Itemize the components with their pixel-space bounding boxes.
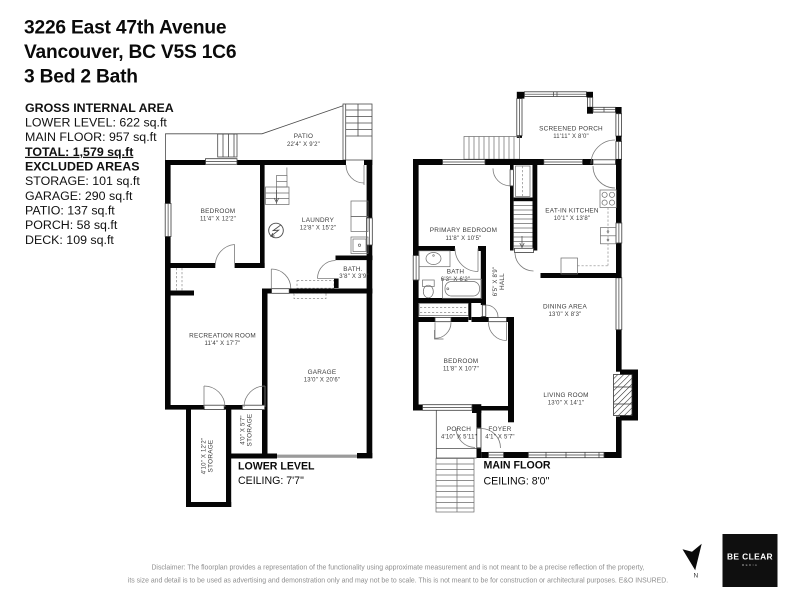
svg-text:PORCH: 58 sq.ft: PORCH: 58 sq.ft [25,218,118,232]
svg-text:CEILING: 8'0": CEILING: 8'0" [484,476,550,488]
svg-text:4'0" X 5'7": 4'0" X 5'7" [241,415,247,444]
svg-text:6'5" X 8'9": 6'5" X 8'9" [493,267,499,296]
svg-text:11'8" X 10'7": 11'8" X 10'7" [443,367,479,373]
svg-text:PRIMARY BEDROOM: PRIMARY BEDROOM [430,227,497,234]
svg-text:CEILING: 7'7": CEILING: 7'7" [238,475,304,487]
svg-text:MAIN FLOOR: MAIN FLOOR [484,460,551,472]
svg-text:3226 East 47th Avenue: 3226 East 47th Avenue [24,18,227,39]
svg-text:LAUNDRY: LAUNDRY [302,217,335,224]
svg-text:BEDROOM: BEDROOM [201,208,236,215]
svg-text:LIVING ROOM: LIVING ROOM [543,392,588,399]
svg-text:13'0" X 8'3": 13'0" X 8'3" [549,312,582,318]
svg-text:EXCLUDED AREAS: EXCLUDED AREAS [25,160,140,174]
svg-text:BEDROOM: BEDROOM [444,358,479,365]
svg-text:Disclaimer: The floorplan prov: Disclaimer: The floorplan provides a rep… [151,565,644,572]
svg-text:Vancouver, BC V5S 1C6: Vancouver, BC V5S 1C6 [24,42,236,63]
svg-text:6'3" X 6'2": 6'3" X 6'2" [441,277,470,283]
svg-text:STORAGE: STORAGE [247,414,254,447]
svg-text:4'1" X 5'7": 4'1" X 5'7" [485,434,514,440]
svg-text:STORAGE: STORAGE [208,440,215,473]
svg-text:N: N [693,573,698,580]
svg-text:BE CLEAR: BE CLEAR [727,552,773,562]
svg-text:12'8" X 15'2": 12'8" X 15'2" [300,226,337,232]
svg-text:FOYER: FOYER [488,426,511,433]
svg-text:11'4" X 12'2": 11'4" X 12'2" [200,217,236,223]
svg-text:PATIO: PATIO [294,133,313,140]
svg-text:13'0" X 20'6": 13'0" X 20'6" [304,378,341,384]
svg-text:EAT-IN KITCHEN: EAT-IN KITCHEN [545,208,599,215]
svg-text:LOWER LEVEL: 622 sq.ft: LOWER LEVEL: 622 sq.ft [25,116,167,130]
svg-text:4'10" X 5'11": 4'10" X 5'11" [441,434,477,440]
svg-text:its size and detail is to be u: its size and detail is to be used as adv… [128,578,668,585]
svg-text:RECREATION ROOM: RECREATION ROOM [189,333,256,340]
svg-text:GARAGE: GARAGE [308,369,337,376]
svg-text:HALL: HALL [499,273,506,290]
svg-text:STORAGE: 101 sq.ft: STORAGE: 101 sq.ft [25,174,140,188]
svg-text:PATIO: 137 sq.ft: PATIO: 137 sq.ft [25,204,115,218]
svg-text:TOTAL: 1,579 sq.ft: TOTAL: 1,579 sq.ft [25,145,133,159]
svg-text:MEDIA: MEDIA [742,563,759,567]
svg-text:11'11" X 8'0": 11'11" X 8'0" [553,134,589,140]
svg-text:LOWER LEVEL: LOWER LEVEL [238,461,315,473]
svg-text:3'8" X 3'9": 3'8" X 3'9" [339,274,368,280]
svg-text:11'4" X 17'7": 11'4" X 17'7" [204,341,240,347]
svg-text:GROSS INTERNAL AREA: GROSS INTERNAL AREA [25,101,174,115]
svg-text:4'10" X 12'2": 4'10" X 12'2" [202,438,208,475]
svg-text:DINING AREA: DINING AREA [543,304,587,311]
svg-text:22'4" X 9'2": 22'4" X 9'2" [287,142,320,148]
svg-text:11'8" X 10'5": 11'8" X 10'5" [445,236,481,242]
svg-text:DECK: 109 sq.ft: DECK: 109 sq.ft [25,233,114,247]
svg-text:13'0" X 14'1": 13'0" X 14'1" [548,401,585,407]
svg-text:MAIN FLOOR: 957 sq.ft: MAIN FLOOR: 957 sq.ft [25,130,157,144]
svg-text:PORCH: PORCH [447,426,471,433]
svg-text:GARAGE: 290 sq.ft: GARAGE: 290 sq.ft [25,189,133,203]
svg-text:3 Bed 2 Bath: 3 Bed 2 Bath [24,67,138,88]
svg-text:10'1" X 13'8": 10'1" X 13'8" [554,216,591,222]
svg-text:BATH.: BATH. [343,266,363,273]
svg-text:SCREENED PORCH: SCREENED PORCH [539,126,603,133]
svg-text:BATH: BATH [447,269,465,276]
